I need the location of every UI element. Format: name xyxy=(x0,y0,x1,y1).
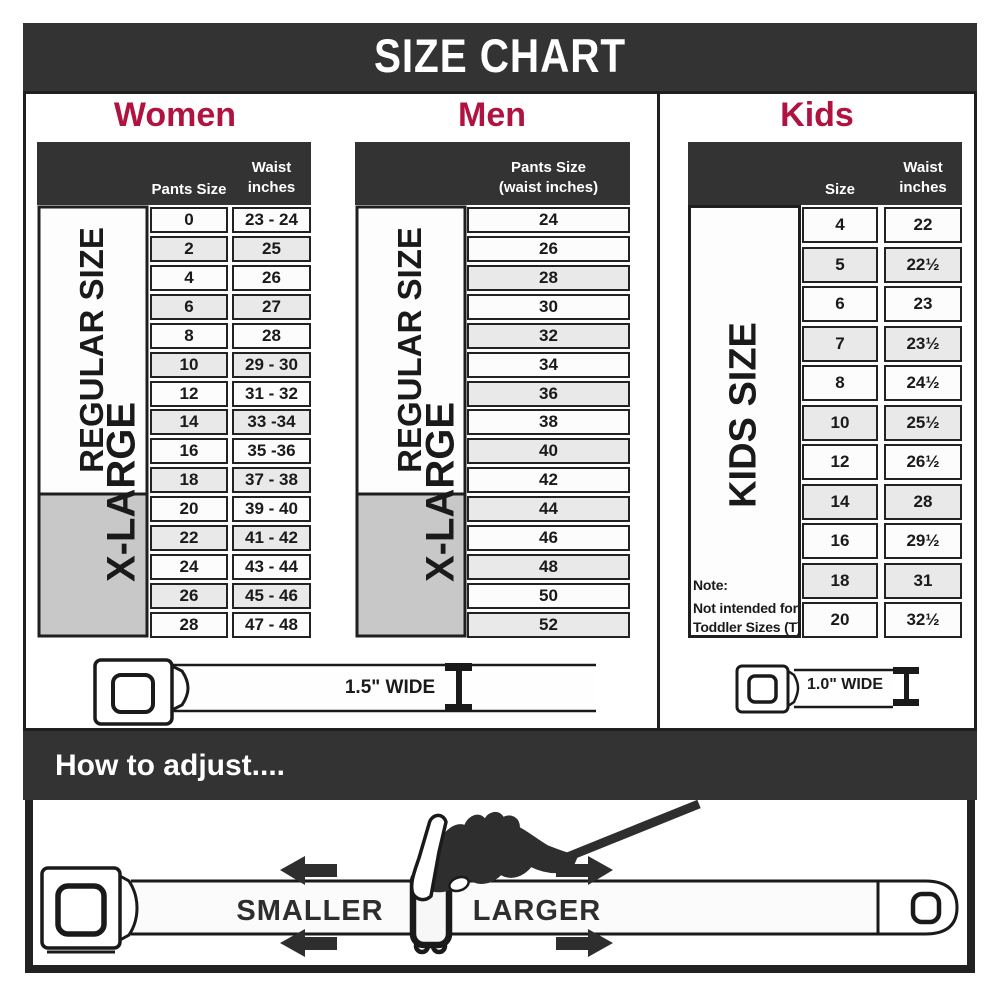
smaller-label: SMALLER xyxy=(235,895,385,928)
women-waist-cell: 31 - 32 xyxy=(232,381,311,407)
women-pants-size-cell: 16 xyxy=(150,438,228,464)
kids-col-header-waist-line2: inches xyxy=(884,178,962,198)
women-pants-size-cell: 20 xyxy=(150,496,228,522)
women-waist-cell: 27 xyxy=(232,294,311,320)
page-title: SIZE CHART xyxy=(374,30,626,84)
kids-waist-cell: 29½ xyxy=(884,523,962,559)
men-pants-size-cell: 24 xyxy=(467,207,630,233)
kids-waist-cell: 28 xyxy=(884,484,962,520)
men-pants-size-cell: 28 xyxy=(467,265,630,291)
kids-note-line2: Not intended for xyxy=(693,599,808,619)
adjust-belt-illustration xyxy=(25,800,975,973)
women-col-header-waist-line2: inches xyxy=(232,178,311,198)
men-pants-size-column: 242628303234363840424446485052 xyxy=(467,207,630,638)
women-waist-cell: 28 xyxy=(232,323,311,349)
men-pants-size-cell: 44 xyxy=(467,496,630,522)
women-pants-size-cell: 18 xyxy=(150,467,228,493)
men-pants-size-cell: 50 xyxy=(467,583,630,609)
women-waist-cell: 43 - 44 xyxy=(232,554,311,580)
women-pants-size-column: 0246810121416182022242628 xyxy=(150,207,228,638)
women-waist-cell: 33 -34 xyxy=(232,409,311,435)
kids-size-cell: 5 xyxy=(802,247,878,283)
women-pants-size-cell: 10 xyxy=(150,352,228,378)
women-waist-cell: 37 - 38 xyxy=(232,467,311,493)
kids-size-cell: 8 xyxy=(802,365,878,401)
kids-size-cell: 14 xyxy=(802,484,878,520)
kids-waist-cell: 31 xyxy=(884,563,962,599)
adjust-title-bar: How to adjust.... xyxy=(23,731,977,800)
women-pants-size-cell: 0 xyxy=(150,207,228,233)
kids-size-cell: 12 xyxy=(802,444,878,480)
men-pants-size-cell: 46 xyxy=(467,525,630,551)
kids-waist-cell: 23½ xyxy=(884,326,962,362)
men-col-header-line2: (waist inches) xyxy=(467,178,630,198)
adult-belt-width-label: 1.5" WIDE xyxy=(320,677,460,699)
women-col-header-waist-line1: Waist xyxy=(232,158,311,178)
title-bar: SIZE CHART xyxy=(23,23,977,91)
men-pants-size-cell: 32 xyxy=(467,323,630,349)
adjust-heading: How to adjust.... xyxy=(55,749,285,783)
women-waist-cell: 35 -36 xyxy=(232,438,311,464)
women-pants-size-cell: 2 xyxy=(150,236,228,262)
men-col-header-line1: Pants Size xyxy=(467,158,630,178)
kids-size-cell: 20 xyxy=(802,602,878,638)
pull-strap-line xyxy=(560,804,699,860)
women-xlarge-label: X-LARGE xyxy=(100,402,145,582)
men-pants-size-cell: 38 xyxy=(467,409,630,435)
men-pants-size-cell: 30 xyxy=(467,294,630,320)
men-pants-size-cell: 36 xyxy=(467,381,630,407)
kids-waist-cell: 26½ xyxy=(884,444,962,480)
size-chart-infographic: SIZE CHART Women Men Kids Pants Size Wai… xyxy=(0,0,1000,1000)
kids-size-cell: 16 xyxy=(802,523,878,559)
kids-size-cell: 7 xyxy=(802,326,878,362)
women-heading: Women xyxy=(75,96,275,135)
women-waist-cell: 39 - 40 xyxy=(232,496,311,522)
kids-size-cell: 6 xyxy=(802,286,878,322)
kids-waist-cell: 22½ xyxy=(884,247,962,283)
women-waist-cell: 45 - 46 xyxy=(232,583,311,609)
kids-waist-column: 2222½2323½24½25½26½2829½3132½ xyxy=(884,207,962,638)
women-pants-size-cell: 8 xyxy=(150,323,228,349)
women-waist-cell: 23 - 24 xyxy=(232,207,311,233)
men-pants-size-cell: 52 xyxy=(467,612,630,638)
larger-label: LARGER xyxy=(462,895,612,928)
men-xlarge-label: X-LARGE xyxy=(419,402,464,582)
kids-waist-cell: 23 xyxy=(884,286,962,322)
women-col-header-waist: Waist inches xyxy=(232,158,311,199)
kids-note-title: Note: xyxy=(693,576,808,596)
women-pants-size-cell: 14 xyxy=(150,409,228,435)
women-waist-cell: 25 xyxy=(232,236,311,262)
kids-size-cell: 18 xyxy=(802,563,878,599)
women-waist-cell: 26 xyxy=(232,265,311,291)
women-waist-cell: 41 - 42 xyxy=(232,525,311,551)
kids-waist-cell: 32½ xyxy=(884,602,962,638)
kids-col-header-waist-line1: Waist xyxy=(884,158,962,178)
kids-note: Note: Not intended for Toddler Sizes (T) xyxy=(693,576,808,638)
kids-note-line3: Toddler Sizes (T) xyxy=(693,618,808,638)
kids-col-header-size: Size xyxy=(802,180,878,200)
men-col-header: Pants Size (waist inches) xyxy=(467,158,630,199)
kids-size-label: KIDS SIZE xyxy=(723,322,766,508)
women-col-header-pants-size: Pants Size xyxy=(150,180,228,200)
women-pants-size-cell: 12 xyxy=(150,381,228,407)
women-pants-size-cell: 26 xyxy=(150,583,228,609)
men-pants-size-cell: 40 xyxy=(467,438,630,464)
women-waist-cell: 47 - 48 xyxy=(232,612,311,638)
men-pants-size-cell: 48 xyxy=(467,554,630,580)
men-pants-size-cell: 42 xyxy=(467,467,630,493)
kids-waist-cell: 24½ xyxy=(884,365,962,401)
women-pants-size-cell: 24 xyxy=(150,554,228,580)
kids-heading: Kids xyxy=(657,96,977,135)
kids-belt-width-label: 1.0" WIDE xyxy=(795,676,895,694)
kids-size-cell: 10 xyxy=(802,405,878,441)
kids-size-column: 45678101214161820 xyxy=(802,207,878,638)
kids-waist-cell: 25½ xyxy=(884,405,962,441)
women-waist-column: 23 - 242526272829 - 3031 - 3233 -3435 -3… xyxy=(232,207,311,638)
women-pants-size-cell: 6 xyxy=(150,294,228,320)
men-heading: Men xyxy=(392,96,592,135)
kids-waist-cell: 22 xyxy=(884,207,962,243)
kids-col-header-waist: Waist inches xyxy=(884,158,962,199)
women-waist-cell: 29 - 30 xyxy=(232,352,311,378)
women-pants-size-cell: 28 xyxy=(150,612,228,638)
women-pants-size-cell: 22 xyxy=(150,525,228,551)
men-pants-size-cell: 26 xyxy=(467,236,630,262)
women-pants-size-cell: 4 xyxy=(150,265,228,291)
kids-size-cell: 4 xyxy=(802,207,878,243)
men-pants-size-cell: 34 xyxy=(467,352,630,378)
